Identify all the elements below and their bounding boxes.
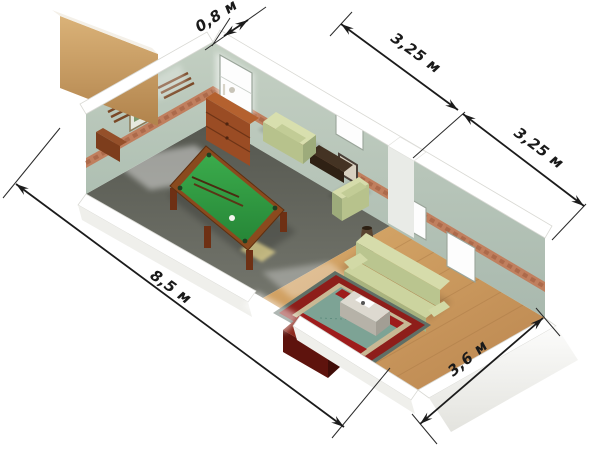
pocket [207,153,212,158]
pocket [243,239,248,244]
vase-mouth [362,226,372,230]
divider-face [388,146,414,238]
table-leg [246,250,253,270]
table-leg [280,212,287,232]
floor-plan-stage: 0,8 м 3,25 м 3,25 м 8,5 м 3,6 м [0,0,600,453]
table-item [361,301,365,305]
decor-glass [229,87,235,93]
floor-plan-drawing: 0,8 м 3,25 м 3,25 м 8,5 м 3,6 м [0,0,600,453]
sideboard-knob [225,122,228,125]
billiard-ball [229,215,235,221]
pocket [273,206,278,211]
pocket [178,186,183,191]
sideboard-knob [225,136,228,139]
table-leg [204,226,211,248]
